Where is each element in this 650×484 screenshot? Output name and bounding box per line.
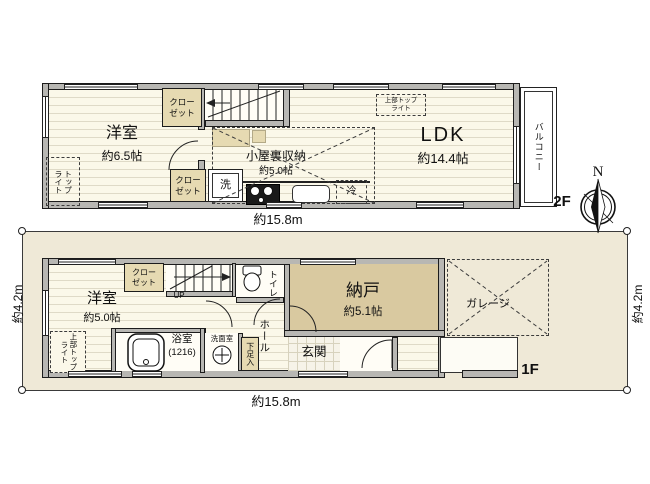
toilet-wall-left	[232, 263, 236, 297]
f2-wall-right-of-stairs	[283, 88, 290, 127]
f2-window-top-4	[442, 84, 496, 90]
f1-stairs-area	[166, 265, 236, 293]
stairs-up-label: UP	[168, 291, 190, 301]
toilet-label: トイレ	[266, 266, 279, 300]
nando-name: 納戸	[320, 280, 406, 302]
washroom-label: 洗面室	[202, 334, 242, 344]
kitchen-sink	[292, 185, 330, 203]
garage-label: ガレージ	[458, 297, 518, 311]
f2-window-top-2	[258, 84, 304, 90]
site-corner-bottom-left	[18, 386, 26, 394]
dim-width-top: 約15.8m	[239, 212, 317, 228]
closet-2f-top: クロー ゼット	[162, 88, 202, 127]
nando-size: 約5.1帖	[326, 306, 400, 320]
f1-west-room-size: 約5.0帖	[64, 312, 140, 325]
floor1-label: 1F	[516, 361, 544, 378]
dim-height-right: 約4.2m	[630, 274, 646, 334]
floor2-label: 2F	[547, 193, 577, 211]
fridge-space: 冷	[336, 180, 367, 204]
bath-size: (1216)	[160, 347, 204, 359]
hall-label: ホール	[256, 310, 272, 362]
site-corner-top-left	[18, 227, 26, 235]
upper-toplight-1f: 上部トップ ライト	[50, 331, 86, 373]
upper-toplight-2f: 上部トップ ライト	[376, 94, 426, 116]
nando-wall-bottom	[284, 330, 445, 337]
upper-toplight-1f-label: 上部トップ ライト	[59, 333, 77, 371]
f1-window-left	[42, 290, 49, 336]
entrance-door-area	[340, 337, 392, 371]
f2-west-room-name: 洋室	[86, 124, 158, 144]
f2-stairs-area	[205, 90, 283, 120]
compass-north-label: N	[593, 164, 604, 180]
f2-west-room-size: 約6.5帖	[86, 149, 158, 163]
compass-icon: N	[581, 164, 615, 233]
closet-2f-top-label: クロー ゼット	[169, 97, 195, 117]
balcony-label: バルコニー	[533, 122, 544, 172]
f2-window-bottom-3	[416, 202, 464, 208]
toplight-2f: トップ ライト	[46, 157, 80, 206]
attic-storage-size: 約5.0帖	[244, 166, 308, 178]
f2-window-top-3	[333, 84, 389, 90]
bath-name: 浴室	[162, 333, 202, 346]
f1-window-bottom-1	[68, 371, 122, 377]
fridge-label: 冷	[347, 186, 357, 198]
f2-window-bottom-1	[98, 202, 148, 208]
f1-window-top-2	[300, 259, 356, 265]
site-corner-top-right	[623, 227, 631, 235]
nando-wall-left	[284, 264, 290, 336]
garage-back-wall	[462, 370, 518, 378]
garage-slab	[440, 337, 518, 373]
f2-window-bottom-2	[266, 202, 302, 208]
closet-2f-bottom-label: クロー ゼット	[175, 175, 201, 195]
closet-1f: クロー ゼット	[124, 263, 164, 292]
f1-window-bottom-2	[132, 371, 162, 377]
site-corner-bottom-right	[623, 386, 631, 394]
entrance-door-threshold	[298, 371, 348, 377]
balcony-door	[513, 126, 520, 184]
dim-height-left: 約4.2m	[10, 274, 26, 334]
washer-label: 洗	[220, 179, 231, 192]
closet-2f-bottom: クロー ゼット	[170, 169, 206, 202]
dim-width-bottom: 約15.8m	[237, 393, 315, 410]
washer-space: 洗	[208, 169, 243, 202]
floor-plan-page: バルコニー クロー ゼット クロー ゼット 洗 冷 上部トップ ライト トップ …	[0, 0, 650, 484]
entrance-label: 玄関	[294, 344, 334, 360]
attic-storage-name: 小屋裏収納	[238, 149, 314, 163]
f1-west-room-name: 洋室	[68, 290, 136, 308]
toplight-2f-label: トップ ライト	[54, 170, 73, 194]
f2-window-left	[42, 96, 49, 138]
upper-toplight-2f-label: 上部トップ ライト	[385, 97, 418, 112]
f2-wall-under-stairs	[205, 120, 290, 127]
closet-1f-label: クロー ゼット	[132, 268, 156, 287]
balcony-inner: バルコニー	[524, 91, 553, 203]
f2-window-top-1	[64, 84, 138, 90]
ldk-size: 約14.4帖	[404, 152, 482, 166]
entrance-wall-right	[392, 337, 398, 371]
ldk-name: LDK	[406, 124, 480, 148]
f1-window-top-1	[58, 259, 116, 265]
